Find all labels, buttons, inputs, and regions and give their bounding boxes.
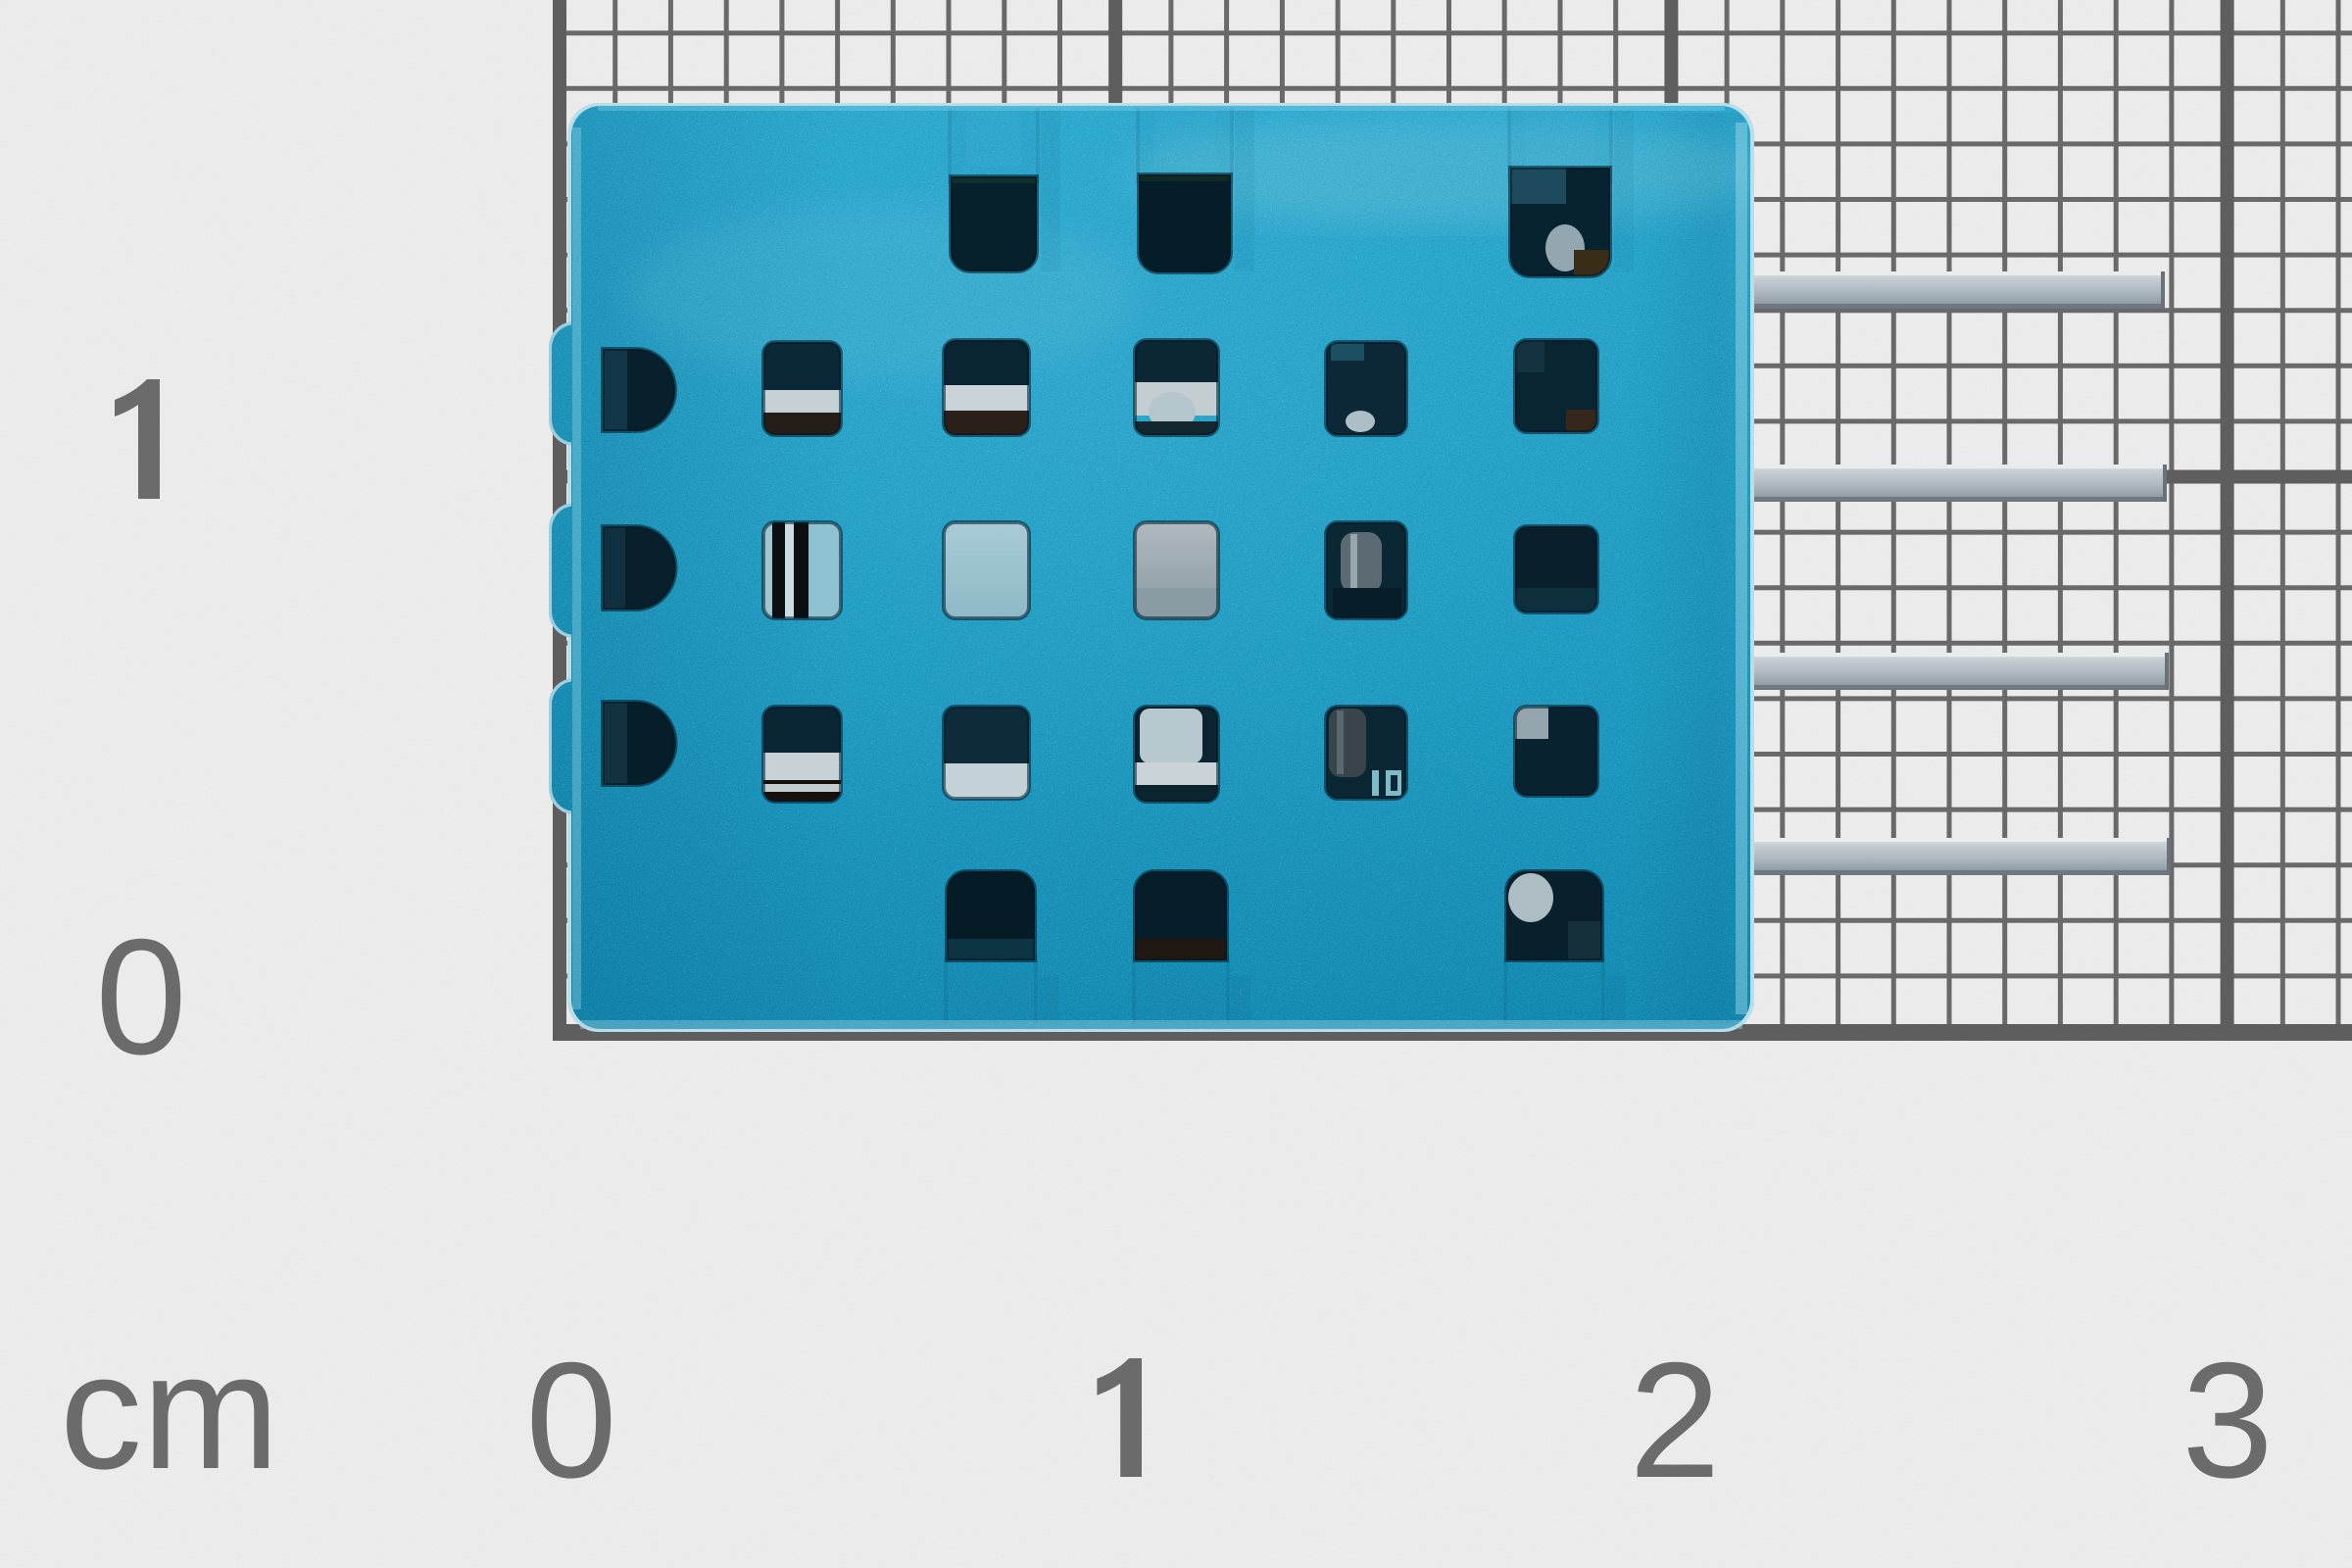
svg-text:cm: cm bbox=[60, 1319, 279, 1503]
svg-text:0: 0 bbox=[525, 1328, 616, 1512]
svg-text:0: 0 bbox=[95, 905, 186, 1089]
svg-text:2: 2 bbox=[1629, 1328, 1720, 1512]
svg-text:3: 3 bbox=[2181, 1328, 2273, 1512]
